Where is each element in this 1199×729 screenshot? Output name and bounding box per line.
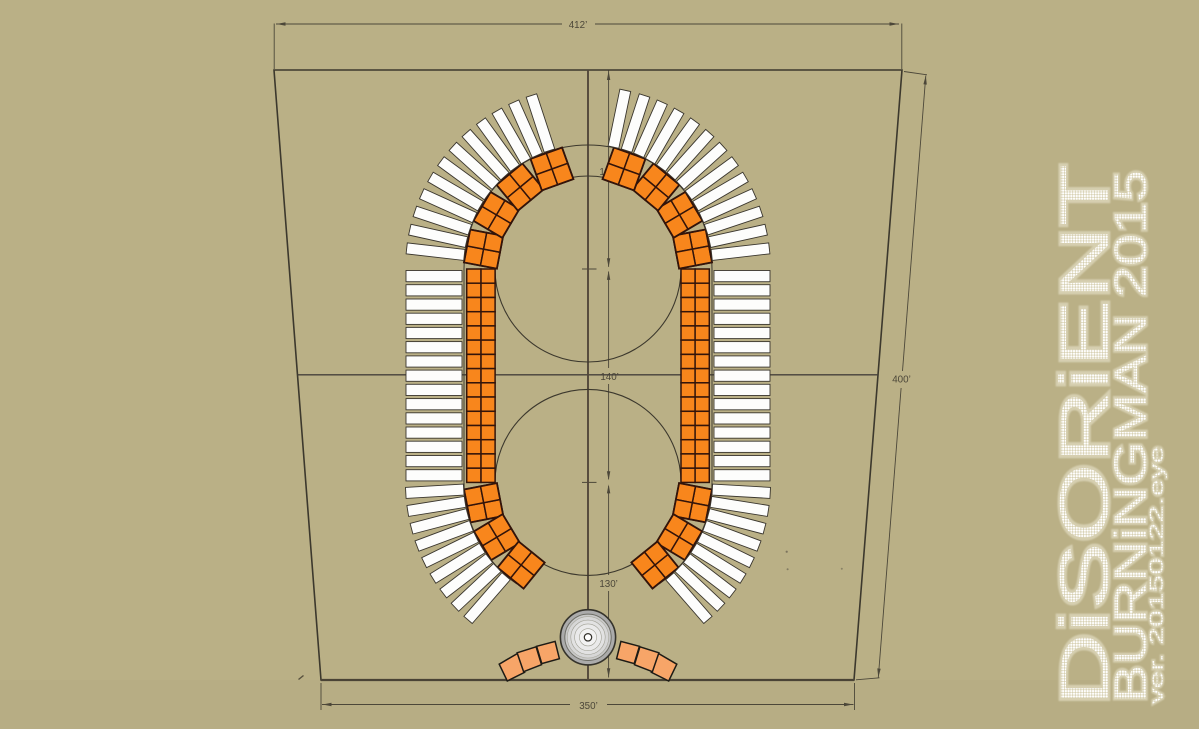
svg-text:140’: 140’: [600, 372, 619, 383]
svg-text:ver. 20150122.eye: ver. 20150122.eye: [1147, 446, 1168, 704]
svg-text:400’: 400’: [892, 375, 911, 386]
svg-text:130’: 130’: [599, 579, 618, 590]
svg-text:412’: 412’: [569, 20, 588, 31]
svg-text:350’: 350’: [579, 701, 598, 712]
